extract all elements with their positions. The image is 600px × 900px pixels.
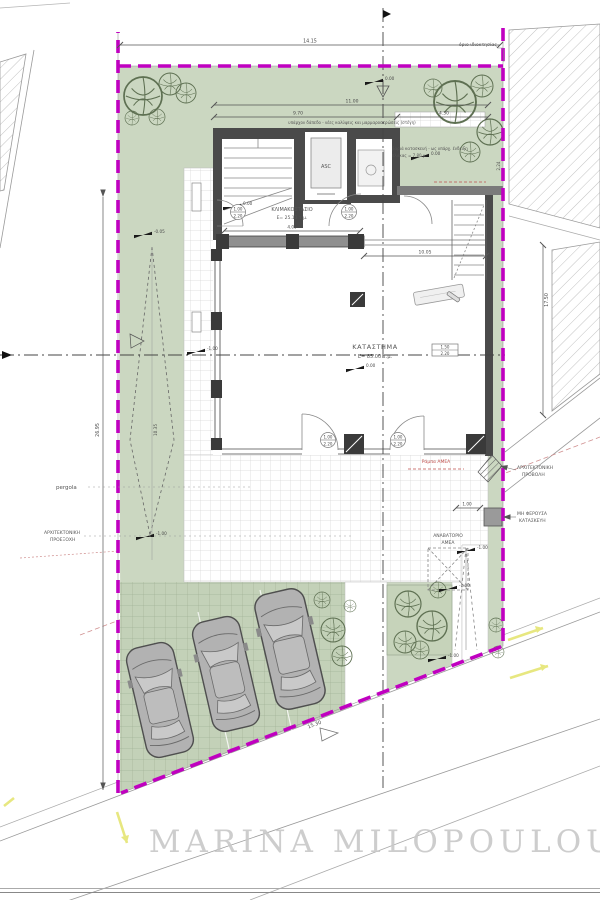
svg-text:2.20: 2.20 <box>234 214 243 219</box>
arch-left-2: ΠΡΟΕΞΟΧΗ <box>50 537 75 543</box>
svg-text:1.00: 1.00 <box>394 435 403 440</box>
stair-hall-name: ΚΛΙΜΑΚΟΣΤΑΣΙΟ <box>271 207 312 213</box>
non-bearing-element <box>484 508 502 526</box>
svg-text:2.20: 2.20 <box>394 442 403 447</box>
svg-text:1.00: 1.00 <box>345 207 354 212</box>
svg-text:2.20: 2.20 <box>345 214 354 219</box>
watermark: MARINA MILOPOULOU <box>149 824 600 860</box>
shop-name: ΚΑΤΑΣΤΗΜΑ <box>352 343 398 351</box>
level-m100-garden3: -1.00 <box>448 653 459 658</box>
arch-right-2: ΠΡΟΒΟΛΗ <box>522 472 545 478</box>
site-plan-drawing: ASC <box>0 0 600 900</box>
svg-text:1.00: 1.00 <box>324 435 333 440</box>
level-zero-lobby: 0.00 <box>243 201 253 206</box>
nonbearing-2: ΚΑΤΑΣΚΕΥΗ <box>519 518 546 524</box>
dim-walk: 1.00 <box>462 502 472 507</box>
boundary-note: όριο ιδιοκτησίας <box>459 41 497 48</box>
stair-hall-area: E= 25.13 τ.μ. <box>277 215 308 221</box>
dim-right: 17.50 <box>544 293 550 307</box>
note-top: υπάρχον δάπεδο - νέες καλύψεις και μαρμα… <box>288 120 416 125</box>
arch-left-1: ΑΡΧΙΤΕΚΤΟΝΙΚΗ <box>44 530 80 536</box>
elevator-label: ASC <box>321 164 332 170</box>
planted-square <box>387 585 452 655</box>
site-plan-page: ASC <box>0 0 600 900</box>
level-m100-garden2: -1.00 <box>459 583 470 588</box>
svg-text:2.20: 2.20 <box>324 442 333 447</box>
pergola-label: pergola <box>56 485 77 491</box>
level-zero-terrace: 0.00 <box>431 151 441 156</box>
lift-label-2: ΑΜΕΑ <box>442 540 456 546</box>
dim-lobby: 4.00 <box>287 225 297 230</box>
elevator-shaft: ASC <box>303 130 349 202</box>
note-right-2: πλάκας = 7.80 μ. <box>392 153 427 158</box>
dim-970: 9.70 <box>293 111 303 117</box>
level-zero-shop: 0.00 <box>366 363 376 368</box>
nonbearing-1: ΜΗ ΦΕΡΟΥΣΑ <box>517 511 548 517</box>
lift-label-1: ΑΝΑΒΑΤΟΡΙΟ <box>433 533 463 539</box>
level-zero-top: 0.00 <box>385 76 395 81</box>
svg-text:1.50: 1.50 <box>441 345 450 350</box>
level-m100-ramp: -1.00 <box>477 545 488 550</box>
ramp-label: Ράμπα ΑΜΕΑ <box>422 458 451 465</box>
svg-text:2.20: 2.20 <box>441 351 450 356</box>
arch-right-1: ΑΡΧΙΤΕΚΤΟΝΙΚΗ <box>517 465 553 471</box>
dim-shopfront: 10.05 <box>419 250 432 256</box>
dim-top: 14.15 <box>303 39 317 45</box>
dim-430: 4.30 <box>439 111 449 117</box>
level-m005-garden: -0.05 <box>154 229 165 234</box>
note-right-1: βαριά κατασκευή - ως υπάρχ. ένδειξη <box>392 146 468 151</box>
dim-1100: 11.00 <box>346 99 359 105</box>
svg-text:1.00: 1.00 <box>234 207 243 212</box>
level-m100-walk: -1.00 <box>207 346 218 351</box>
level-m100-pergola: -1.00 <box>156 531 167 536</box>
sheet-frame <box>0 889 600 893</box>
dim-shaft: 2.24 <box>496 161 501 170</box>
dim-left: 26.95 <box>95 423 101 437</box>
shop-area: E= 85.00 τ.μ. <box>358 354 393 360</box>
dim-cone: 10.35 <box>153 424 158 436</box>
